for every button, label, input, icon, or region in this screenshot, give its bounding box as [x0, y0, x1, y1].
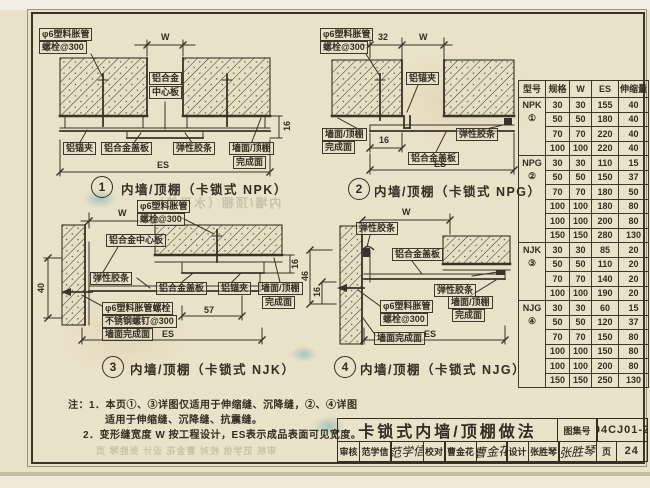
bolt-label: 螺栓@300	[137, 213, 185, 226]
type-cell: NJG④	[519, 301, 546, 388]
detail-caption-npk: 内墙/顶棚（卡锁式 NPK）	[121, 179, 288, 198]
dim-es: ES	[162, 329, 174, 339]
table-cell: 30	[570, 98, 592, 113]
table-cell: 100	[570, 344, 592, 359]
note-line: 注：1．本页①、③详图仅适用于伸缩缝、沉降缝，②、④详图	[68, 396, 358, 411]
bleed-through-text: 审核 范学信 校对 曹金花 设计 张胜琴 页	[95, 444, 276, 457]
detail-caption-njk: 内墙/顶棚（卡锁式 NJK）	[130, 359, 295, 378]
anchor-label: φ6塑料胀管	[137, 200, 190, 213]
table-cell: 70	[570, 272, 592, 287]
table-cell: 50	[570, 170, 592, 185]
table-cell: 50	[546, 112, 570, 127]
table-cell: 85	[592, 243, 619, 258]
finish-label: 完成面	[262, 296, 295, 309]
note-line: 适用于伸缩缝、沉降缝、抗震缝。	[105, 411, 263, 426]
center-plate-label: 中心板	[149, 86, 182, 99]
dim-40: 40	[36, 283, 46, 293]
reviewer-name: 范学信	[359, 441, 392, 462]
wall-finish-label: 墙面完成面	[374, 332, 425, 345]
table-cell: 70	[570, 185, 592, 200]
table-cell: 15	[619, 301, 649, 316]
signature-text: 张胜琴	[559, 441, 596, 460]
table-cell: 20	[619, 257, 649, 272]
table-cell: 110	[592, 257, 619, 272]
table-cell: 280	[592, 228, 619, 243]
bolt-label: 螺栓@300	[380, 313, 428, 326]
spec-table-header: 伸缩量	[619, 81, 649, 98]
table-cell: 50	[546, 170, 570, 185]
anchor-label: φ6塑料胀管	[380, 300, 433, 313]
designer-label: 设计	[506, 441, 529, 462]
detail-drawing-njk: φ6塑料胀管 螺栓@300 铝合金中心板 弹性胶条 铝合金盖板 铝锚夹 墙面/顶…	[32, 200, 320, 378]
table-cell: 100	[570, 141, 592, 156]
type-cell: NJK③	[519, 243, 546, 301]
detail-caption-njg: 内墙/顶棚（卡锁式 NJG）	[360, 359, 526, 378]
dim-16: 16	[290, 259, 300, 269]
table-cell: 30	[546, 243, 570, 258]
table-cell: 37	[619, 170, 649, 185]
table-cell: 70	[546, 185, 570, 200]
checker-label: 校对	[423, 441, 446, 462]
center-plate-label: 铝合金	[149, 72, 182, 85]
table-cell: 30	[546, 156, 570, 171]
detail-number-4: 4	[334, 356, 356, 378]
anchor-label: φ6塑料胀管	[39, 28, 92, 41]
finish-label: 墙面/顶棚	[448, 296, 493, 309]
table-cell: 30	[546, 98, 570, 113]
table-cell: 50	[570, 112, 592, 127]
gasket-label: 弹性胶条	[356, 222, 398, 235]
designer-name: 张胜琴	[528, 441, 560, 462]
table-row: NPK①303015540	[519, 98, 649, 113]
table-cell: 50	[570, 315, 592, 330]
table-cell: 250	[592, 373, 619, 388]
wall-finish-label: 墙面完成面	[102, 328, 153, 341]
table-cell: 40	[619, 98, 649, 113]
table-cell: 100	[570, 214, 592, 229]
detail-drawing-npk: φ6塑料胀管 螺栓@300 铝合金 中心板 铝锚夹 铝合金盖板 弹性胶条 墙面/…	[35, 28, 315, 200]
table-cell: 37	[619, 315, 649, 330]
table-cell: 180	[592, 185, 619, 200]
table-cell: 150	[592, 330, 619, 345]
table-row: NJG④30306015	[519, 301, 649, 316]
clip-label: 铝锚夹	[218, 282, 251, 295]
dim-es: ES	[424, 329, 436, 339]
finish-label: 墙面/顶棚	[258, 282, 303, 295]
table-row: NJK③30308520	[519, 243, 649, 258]
table-cell: 80	[619, 199, 649, 214]
table-cell: 220	[592, 141, 619, 156]
dim-32: 32	[378, 32, 388, 42]
detail-drawing-njg: 弹性胶条 铝合金盖板 弹性胶条 φ6塑料胀管 螺栓@300 墙面完成面 墙面/顶…	[300, 200, 516, 378]
table-cell: 110	[592, 156, 619, 171]
table-cell: 100	[570, 359, 592, 374]
bolt-label: 螺栓@300	[39, 41, 87, 54]
table-cell: 80	[619, 344, 649, 359]
page-number: 24	[616, 441, 649, 462]
finish-label: 完成面	[322, 141, 355, 154]
table-cell: 220	[592, 127, 619, 142]
table-cell: 130	[619, 228, 649, 243]
page-bottom-margin	[0, 476, 650, 488]
table-cell: 80	[619, 214, 649, 229]
dim-16: 16	[379, 135, 389, 145]
detail-drawing-npg: φ6塑料胀管 螺栓@300 铝锚夹 墙面/顶棚 完成面 铝合金盖板 弹性胶条 3…	[320, 28, 518, 200]
table-cell: 80	[619, 359, 649, 374]
table-cell: 70	[570, 127, 592, 142]
spec-table-header: 型号	[519, 81, 546, 98]
table-cell: 140	[592, 272, 619, 287]
table-cell: 100	[570, 199, 592, 214]
table-cell: 150	[546, 373, 570, 388]
finish-label: 完成面	[452, 309, 485, 322]
table-cell: 20	[619, 286, 649, 301]
type-cell: NPG②	[519, 156, 546, 243]
type-cell: NPK①	[519, 98, 546, 156]
table-cell: 40	[619, 141, 649, 156]
signature-text: 曹金花	[476, 441, 508, 460]
table-cell: 15	[619, 156, 649, 171]
table-cell: 100	[546, 359, 570, 374]
dim-w: W	[419, 32, 428, 42]
spec-table-header: 规格	[546, 81, 570, 98]
clip-label: 铝锚夹	[406, 72, 439, 85]
table-row: NPG②303011015	[519, 156, 649, 171]
table-cell: 30	[570, 243, 592, 258]
detail-number-3: 3	[102, 356, 124, 378]
wall-bolt-label: φ6塑料胀管螺栓	[102, 302, 173, 315]
atlas-number: 04CJ01-2	[596, 418, 648, 442]
spec-table-header: W	[570, 81, 592, 98]
finish-label: 墙面/顶棚	[322, 128, 367, 141]
screw-label: 不锈钢螺钉@300	[102, 315, 177, 328]
dim-57: 57	[204, 305, 214, 315]
dim-w: W	[402, 207, 411, 217]
table-cell: 200	[592, 359, 619, 374]
table-cell: 130	[619, 373, 649, 388]
table-cell: 150	[570, 228, 592, 243]
detail-caption-npg: 内墙/顶棚（卡锁式 NPG）	[374, 181, 542, 200]
table-cell: 70	[570, 330, 592, 345]
table-cell: 30	[546, 301, 570, 316]
signature-text: 范学信	[390, 441, 424, 460]
bolt-label: 螺栓@300	[320, 41, 368, 54]
sheet-title: 卡锁式内墙/顶棚做法	[337, 418, 558, 442]
table-cell: 150	[592, 170, 619, 185]
designer-signature: 张胜琴	[558, 441, 597, 462]
table-cell: 155	[592, 98, 619, 113]
table-cell: 100	[546, 344, 570, 359]
dim-es: ES	[157, 160, 169, 170]
table-cell: 30	[570, 301, 592, 316]
drawing-sheet: 内墙/顶棚（水平缝） 审核 范学信 校对 曹金花 设计 张胜琴 页	[0, 0, 650, 488]
finish-label: 墙面/顶棚	[229, 142, 274, 155]
page-label: 页	[596, 441, 617, 462]
table-cell: 100	[570, 286, 592, 301]
cover-plate-label: 铝合金盖板	[101, 142, 152, 155]
table-cell: 70	[546, 272, 570, 287]
table-cell: 20	[619, 243, 649, 258]
note-line: 2．变形缝宽度 W 按工程设计，ES表示成品表面可见宽度。	[83, 426, 361, 441]
clip-label: 铝锚夹	[63, 142, 96, 155]
dim-w: W	[161, 32, 170, 42]
table-cell: 100	[546, 141, 570, 156]
table-cell: 180	[592, 199, 619, 214]
detail-geometry-njg	[300, 200, 516, 378]
table-cell: 150	[592, 344, 619, 359]
table-cell: 40	[619, 112, 649, 127]
dim-es: ES	[434, 159, 446, 169]
checker-name: 曹金花	[444, 441, 477, 462]
atlas-number-label: 图集号	[557, 418, 598, 442]
dim-46: 46	[300, 271, 310, 281]
table-cell: 120	[592, 315, 619, 330]
table-cell: 60	[592, 301, 619, 316]
checker-signature: 曹金花	[476, 441, 508, 462]
table-cell: 100	[546, 214, 570, 229]
dim-16: 16	[282, 121, 292, 131]
spec-table-header: ES	[592, 81, 619, 98]
dim-16: 16	[312, 287, 322, 297]
table-cell: 30	[570, 156, 592, 171]
gasket-label: 弹性胶条	[90, 272, 132, 285]
table-cell: 190	[592, 286, 619, 301]
table-cell: 50	[619, 185, 649, 200]
table-cell: 100	[546, 199, 570, 214]
table-cell: 40	[619, 127, 649, 142]
table-cell: 150	[570, 373, 592, 388]
detail-number-1: 1	[91, 176, 113, 198]
table-cell: 50	[546, 257, 570, 272]
reviewer-signature: 范学信	[390, 441, 424, 462]
table-cell: 50	[570, 257, 592, 272]
table-cell: 70	[546, 330, 570, 345]
anchor-label: φ6塑料胀管	[320, 28, 373, 41]
reviewer-label: 审核	[337, 441, 360, 462]
spec-table: 型号规格WES伸缩量NPK①30301554050501804070702204…	[518, 80, 649, 388]
cover-plate-label: 铝合金盖板	[392, 248, 443, 261]
gasket-label: 弹性胶条	[456, 128, 498, 141]
table-cell: 20	[619, 272, 649, 287]
table-cell: 70	[546, 127, 570, 142]
finish-label: 完成面	[233, 156, 266, 169]
table-cell: 50	[546, 315, 570, 330]
gasket-label: 弹性胶条	[173, 142, 215, 155]
table-cell: 80	[619, 330, 649, 345]
table-cell: 100	[546, 286, 570, 301]
cover-plate-label: 铝合金盖板	[156, 282, 207, 295]
detail-number-2: 2	[348, 178, 370, 200]
table-cell: 150	[546, 228, 570, 243]
center-plate-label: 铝合金中心板	[106, 234, 166, 247]
dim-w: W	[118, 208, 127, 218]
table-cell: 180	[592, 112, 619, 127]
table-cell: 200	[592, 214, 619, 229]
